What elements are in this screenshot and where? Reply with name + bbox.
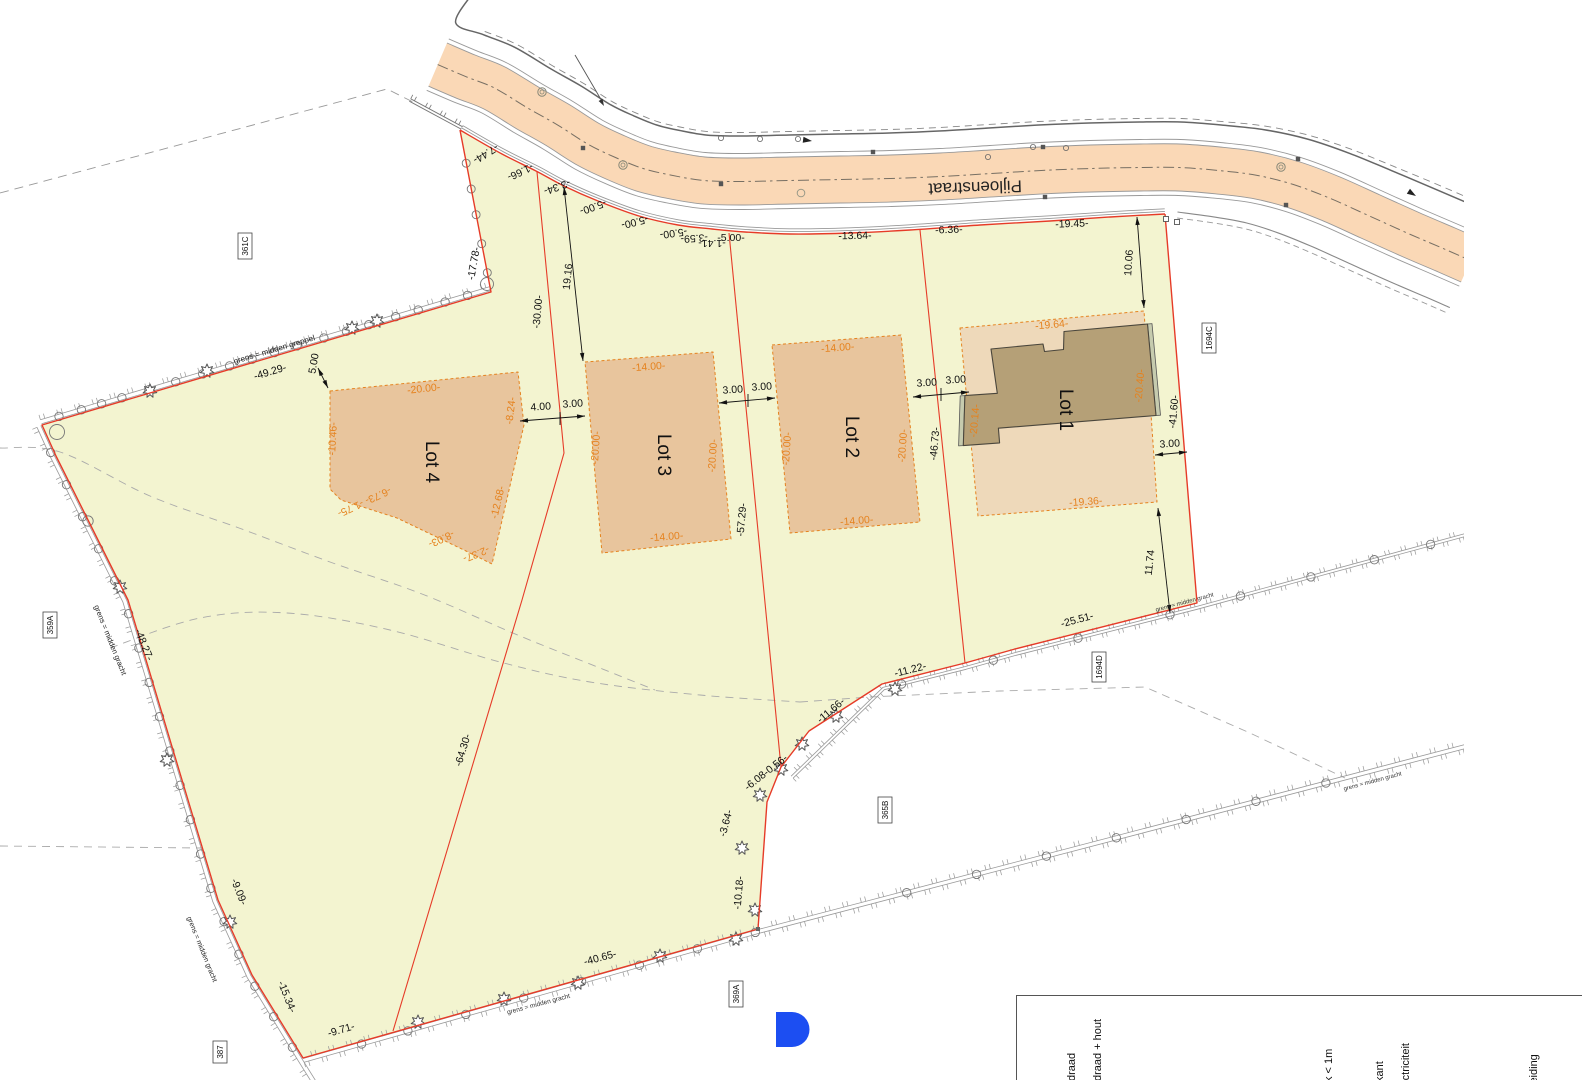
svg-text:-10.46-: -10.46- — [326, 421, 340, 455]
svg-text:Lot 2: Lot 2 — [841, 416, 862, 458]
svg-text:leiding: leiding — [1528, 1054, 1540, 1080]
svg-text:-20.00-: -20.00- — [589, 430, 603, 465]
svg-text:electriciteit: electriciteit — [1400, 1043, 1412, 1080]
svg-text:Lot 4: Lot 4 — [421, 441, 442, 484]
svg-text:361C: 361C — [241, 236, 250, 255]
svg-text:-19.45-: -19.45- — [1055, 217, 1089, 230]
svg-text:10.06: 10.06 — [1122, 249, 1136, 276]
svg-text:3.00: 3.00 — [916, 376, 937, 389]
svg-text:365B: 365B — [881, 801, 890, 820]
svg-text:-13.64-: -13.64- — [838, 230, 872, 243]
svg-text:Pijloenstraat: Pijloenstraat — [928, 176, 1022, 198]
svg-text:k < 1m: k < 1m — [1323, 1049, 1335, 1080]
svg-text:-6.36-: -6.36- — [935, 224, 963, 237]
svg-text:-20.00-: -20.00- — [780, 431, 794, 466]
svg-text:3.00: 3.00 — [945, 373, 966, 386]
svg-text:359A: 359A — [46, 615, 55, 634]
svg-text:draad + hout: draad + hout — [1092, 1019, 1104, 1080]
svg-text:-19.36-: -19.36- — [1069, 495, 1104, 509]
svg-text:4.00: 4.00 — [530, 400, 551, 413]
svg-text:3.00: 3.00 — [562, 397, 583, 410]
svg-text:387: 387 — [216, 1045, 225, 1059]
svg-text:3.00: 3.00 — [751, 380, 772, 393]
svg-text:369A: 369A — [732, 984, 741, 1003]
svg-text:Lot 1: Lot 1 — [1055, 389, 1076, 431]
svg-text:-20.00-: -20.00- — [896, 428, 910, 463]
svg-text:3.00: 3.00 — [722, 383, 743, 396]
svg-text:Lot 3: Lot 3 — [653, 434, 674, 476]
svg-text:draad: draad — [1066, 1053, 1078, 1080]
svg-text:kant: kant — [1374, 1061, 1386, 1080]
svg-text:3.00: 3.00 — [1159, 437, 1180, 450]
svg-text:1694C: 1694C — [1205, 326, 1214, 350]
svg-text:-5.00-: -5.00- — [717, 232, 745, 244]
svg-text:1694D: 1694D — [1095, 655, 1104, 679]
svg-text:-20.00-: -20.00- — [706, 438, 720, 473]
